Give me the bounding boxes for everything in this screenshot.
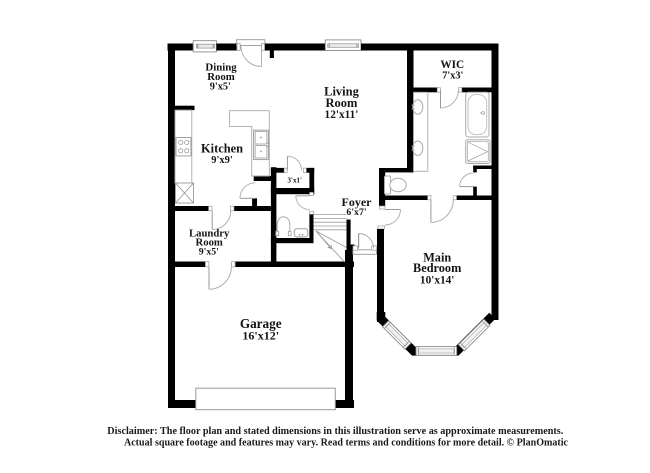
svg-text:Room: Room bbox=[326, 96, 359, 110]
svg-text:WIC: WIC bbox=[440, 59, 464, 71]
svg-text:Kitchen: Kitchen bbox=[201, 141, 243, 155]
svg-text:Actual square footage and feat: Actual square footage and features may v… bbox=[124, 437, 569, 448]
svg-text:Bedroom: Bedroom bbox=[413, 261, 462, 275]
svg-text:16'x12': 16'x12' bbox=[242, 329, 279, 343]
svg-text:9'x9': 9'x9' bbox=[211, 155, 233, 166]
svg-text:3'x1': 3'x1' bbox=[288, 176, 302, 184]
svg-text:12'x11': 12'x11' bbox=[325, 109, 359, 121]
svg-text:7'x3': 7'x3' bbox=[442, 71, 463, 82]
svg-text:10'x14': 10'x14' bbox=[420, 274, 455, 286]
svg-text:9'x5': 9'x5' bbox=[210, 82, 231, 93]
svg-text:9'x5': 9'x5' bbox=[199, 247, 219, 258]
svg-text:Disclaimer: The floor plan and: Disclaimer: The floor plan and stated di… bbox=[107, 426, 563, 437]
svg-text:6'x7': 6'x7' bbox=[346, 207, 366, 218]
